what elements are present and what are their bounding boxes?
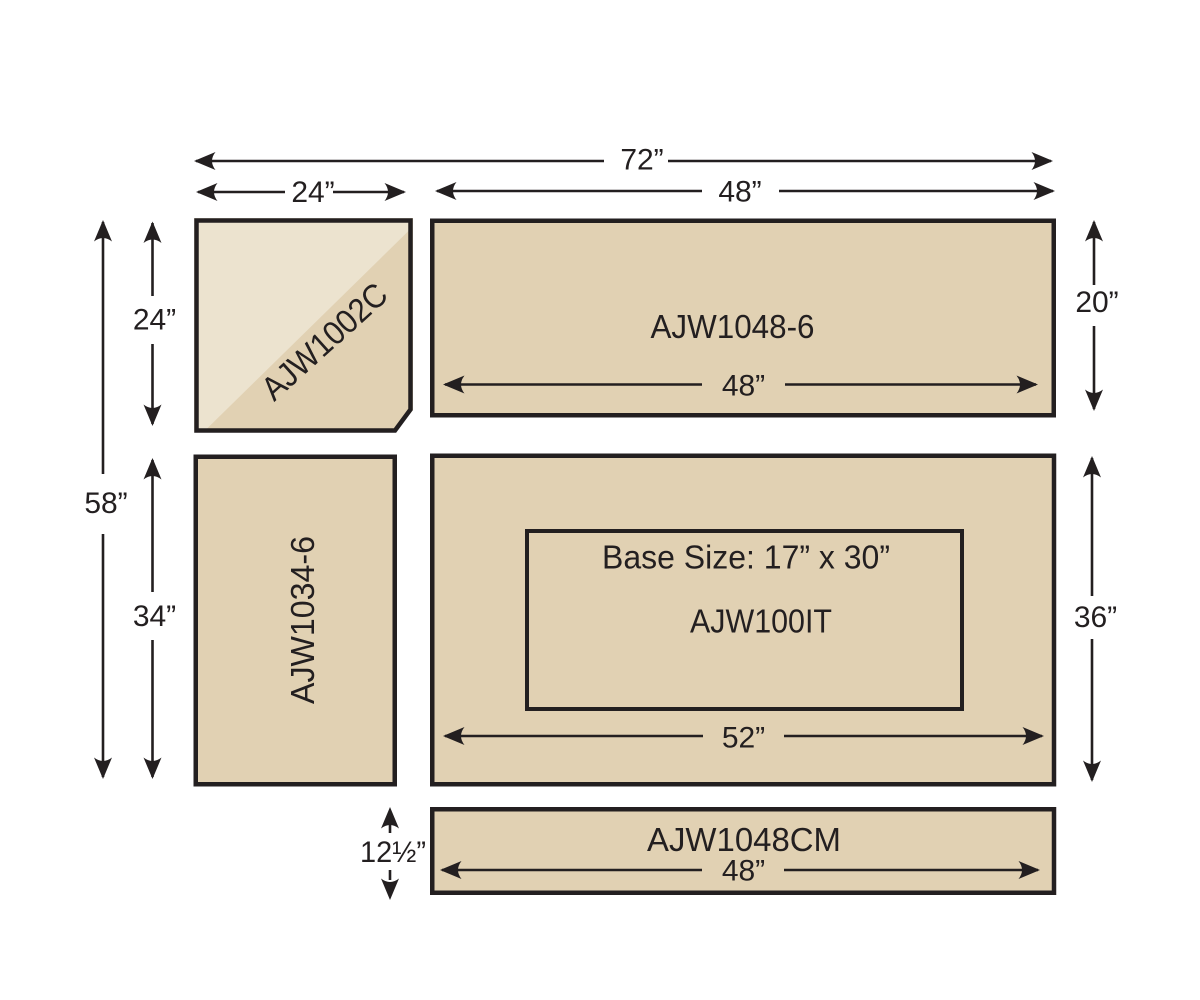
svg-text:72”: 72” [620,144,663,177]
svg-text:AJW1048CM: AJW1048CM [647,822,841,859]
svg-text:24”: 24” [291,176,334,209]
svg-text:48”: 48” [722,855,765,888]
svg-text:AJW1048-6: AJW1048-6 [651,309,815,346]
svg-text:36”: 36” [1074,601,1117,634]
svg-text:24”: 24” [133,304,176,337]
svg-text:52”: 52” [722,722,765,755]
svg-text:AJW100IT: AJW100IT [690,604,832,641]
svg-text:AJW1034-6: AJW1034-6 [285,536,322,704]
svg-text:48”: 48” [718,176,761,209]
svg-text:12½”: 12½” [360,836,426,869]
svg-text:58”: 58” [84,487,127,520]
svg-text:Base Size: 17” x 30”: Base Size: 17” x 30” [602,540,890,577]
svg-text:48”: 48” [722,370,765,403]
svg-text:34”: 34” [133,600,176,633]
svg-text:20”: 20” [1075,286,1118,319]
